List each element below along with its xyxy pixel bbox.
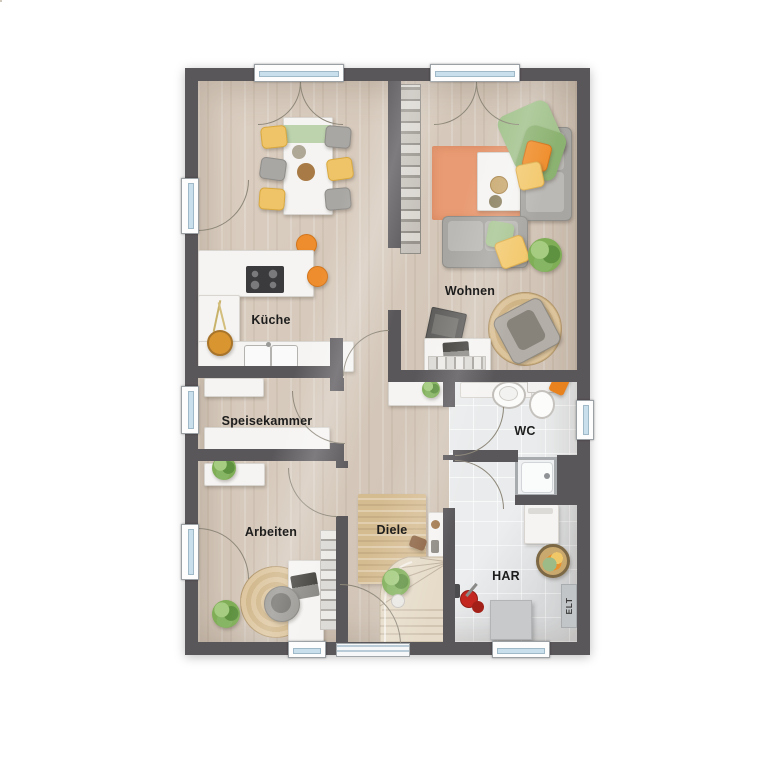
wall	[185, 366, 330, 378]
table-plant	[489, 195, 502, 208]
dining-chair-yellow	[326, 156, 355, 181]
room-label-speisekammer: Speisekammer	[222, 414, 313, 428]
window	[181, 386, 199, 434]
shower-drain	[544, 473, 550, 479]
dining-chair-yellow	[260, 125, 288, 150]
wall	[388, 370, 577, 382]
wall	[388, 310, 401, 372]
bookshelf	[400, 84, 421, 254]
room-label-kueche: Küche	[251, 313, 290, 327]
washer-lid	[528, 508, 553, 514]
fruit-basket	[207, 330, 233, 356]
sideboard-items	[428, 356, 486, 370]
dining-chair-gray	[324, 125, 352, 149]
wall	[336, 516, 348, 642]
room-label-wc: WC	[514, 424, 535, 438]
wall	[330, 378, 344, 391]
room-label-arbeiten: Arbeiten	[245, 525, 297, 539]
pillow-yellow	[515, 161, 546, 192]
room-label-elt: ELT	[564, 598, 574, 615]
laundry-basket	[536, 544, 570, 578]
wall	[443, 382, 455, 407]
window	[181, 178, 199, 234]
wall	[336, 461, 348, 468]
wall	[330, 338, 343, 378]
faucet	[266, 342, 271, 347]
table-bowl	[297, 163, 315, 181]
window	[576, 400, 594, 440]
window	[492, 641, 550, 658]
couch-cushion	[448, 221, 483, 251]
washbasin-bowl	[499, 386, 518, 401]
entry-door	[336, 643, 410, 657]
toilet-bowl	[529, 390, 555, 419]
office-chair-seat	[271, 593, 291, 613]
bar-stool	[307, 266, 328, 287]
plant-pot	[391, 594, 405, 608]
console-vase	[431, 540, 439, 553]
sink-basin	[271, 345, 298, 368]
floor-plan: Küche Wohnen Speisekammer Arbeiten Diele…	[0, 0, 775, 775]
cooktop	[246, 266, 284, 293]
dining-chair-gray	[324, 187, 352, 211]
pantry-shelf	[204, 378, 264, 397]
window	[430, 64, 520, 82]
sink-basin	[244, 345, 271, 368]
storage-box	[490, 600, 532, 640]
wall	[515, 495, 577, 505]
wall	[185, 449, 344, 461]
wall	[443, 508, 455, 642]
plant	[422, 380, 440, 398]
plant	[528, 238, 562, 272]
window	[288, 641, 326, 658]
room-label-wohnen: Wohnen	[445, 284, 495, 298]
table-decor	[292, 145, 306, 159]
window	[181, 524, 199, 580]
room-label-har: HAR	[492, 569, 520, 583]
hall-cabinet	[388, 380, 449, 406]
wall	[453, 450, 518, 462]
vacuum-head	[472, 601, 484, 613]
dining-chair-gray	[259, 156, 288, 181]
console-decor	[431, 520, 440, 529]
wall	[388, 81, 401, 248]
room-label-diele: Diele	[377, 523, 408, 537]
dining-chair-yellow	[258, 187, 285, 211]
spacer	[0, 0, 2, 2]
staircase	[374, 554, 450, 642]
plant	[212, 600, 240, 628]
window	[254, 64, 344, 82]
table-tray	[490, 176, 508, 194]
plant	[382, 568, 410, 596]
